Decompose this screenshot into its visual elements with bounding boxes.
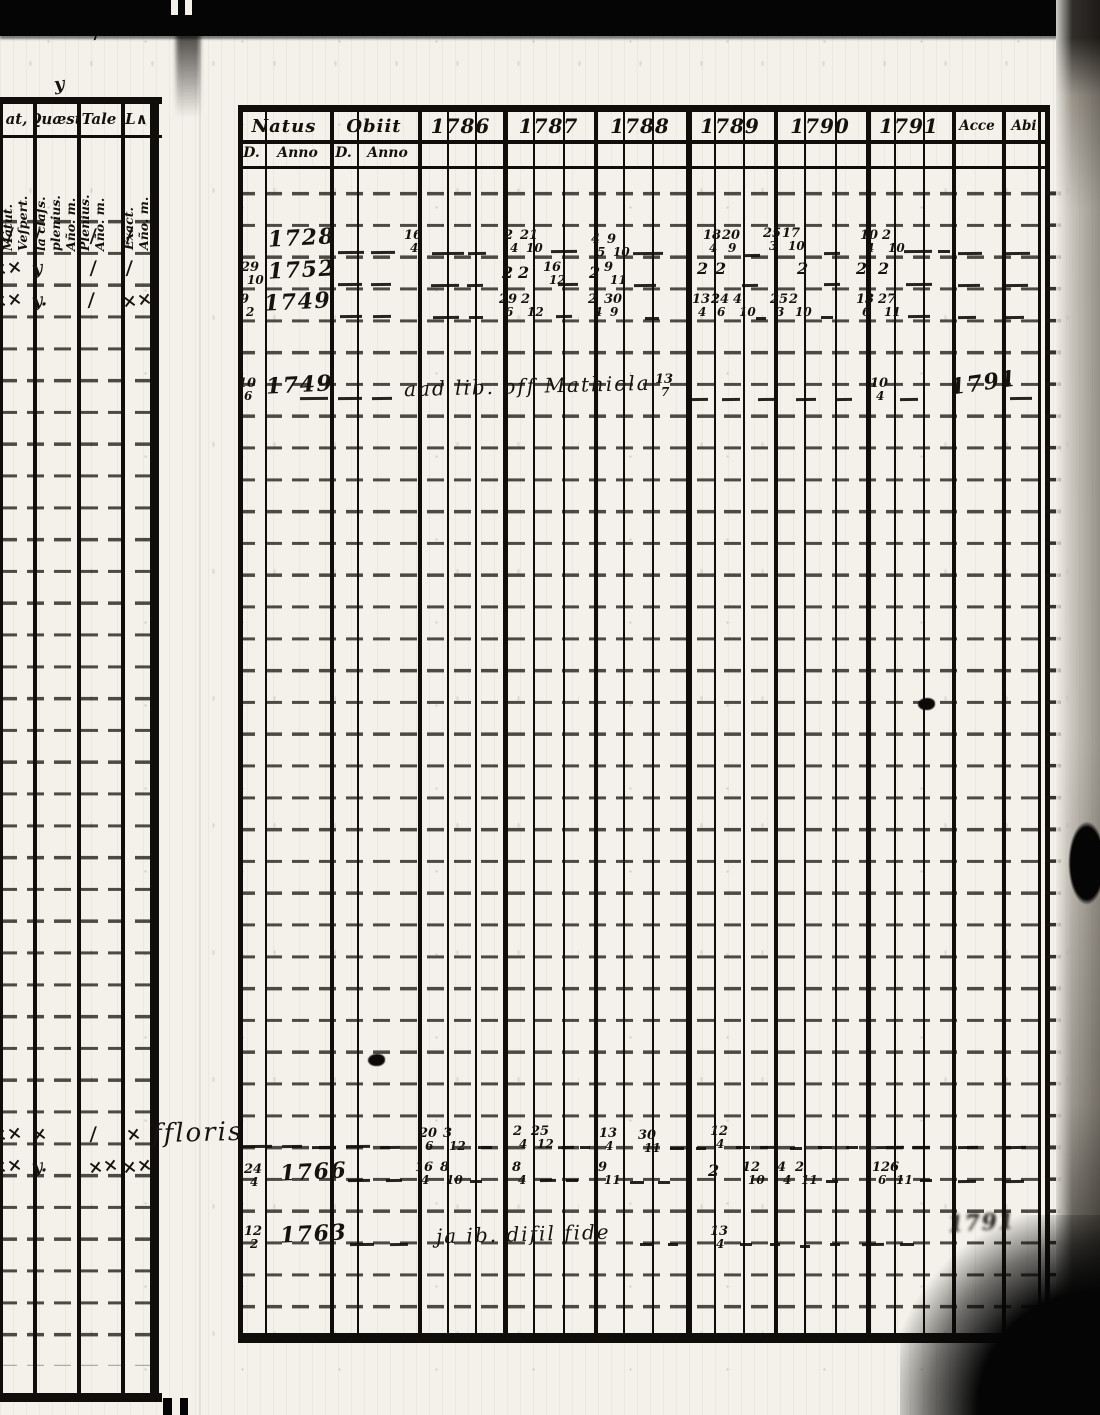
- grid-line: [238, 105, 1050, 112]
- subheader-obiit-anno: Anno: [357, 141, 418, 165]
- grid-line: [952, 105, 956, 1343]
- left-page-table: at, Quæst Tale L∧ Matut. Veſpert. la cla…: [0, 97, 162, 1407]
- header-cell-natus: Natus: [238, 112, 330, 140]
- grid-line: [652, 105, 654, 1343]
- header-cell-acce: Acce: [952, 112, 1002, 140]
- handwritten-entry: ffloris: [152, 1117, 244, 1149]
- grid-line: [0, 135, 162, 138]
- grid-line: [623, 105, 625, 1343]
- grid-line: [503, 105, 508, 1343]
- grid-line: [743, 105, 745, 1343]
- top-band-notch-1: [171, 0, 178, 15]
- grid-line: [357, 105, 359, 1343]
- grid-line: [418, 105, 422, 1343]
- grid-line: [594, 105, 598, 1343]
- subheader-natus-anno: Anno: [265, 141, 330, 165]
- grid-line: [714, 105, 716, 1343]
- scan-bottom-right-shadow: [900, 1215, 1100, 1415]
- left-header-rotated-3: Plenius. Año. m.: [77, 139, 121, 307]
- grid-line: [475, 105, 477, 1343]
- grid-line: [0, 97, 162, 104]
- grid-line: [330, 105, 334, 1343]
- main-row-grid: [238, 169, 1050, 1333]
- grid-line: [238, 166, 1050, 169]
- gutter-shadow-streak: [176, 22, 200, 117]
- grid-line: [1002, 105, 1006, 1343]
- grid-line: [265, 105, 267, 1343]
- grid-line: [686, 105, 692, 1343]
- archival-ledger-scan: { "left_page": { "col_headers": [ {"top"…: [0, 0, 1100, 1415]
- left-header-rotated-1: Matut. Veſpert.: [0, 139, 33, 307]
- scan-right-edge-shadow: [1056, 0, 1100, 1415]
- left-header-cell-1: at,: [0, 105, 33, 133]
- grid-line: [835, 105, 837, 1343]
- bottom-edge-tick-1: [163, 1398, 172, 1415]
- grid-line: [1038, 105, 1041, 1343]
- main-ledger-table: Natus Obiit 1786 1787 1788 1789 1790 179…: [238, 105, 1050, 1345]
- left-page-row-grid: [0, 219, 162, 1393]
- grid-line: [774, 105, 778, 1343]
- grid-line: [804, 105, 806, 1343]
- header-cell-1790: 1790: [774, 112, 866, 140]
- gutter-fold-line: [199, 36, 201, 1415]
- grid-line: [923, 105, 925, 1343]
- header-cell-1791: 1791: [866, 112, 952, 140]
- scan-top-black-band: [0, 0, 1100, 36]
- left-header-rotated-2: la claſs. plenius. Año. m.: [33, 139, 77, 307]
- left-header-cell-3: Tale: [77, 105, 121, 133]
- header-cell-1787: 1787: [503, 112, 594, 140]
- grid-line: [866, 105, 871, 1343]
- header-cell-abi: Abi: [1002, 112, 1046, 140]
- grid-line: [447, 105, 449, 1343]
- top-band-notch-2: [185, 0, 192, 15]
- grid-line: [533, 105, 535, 1343]
- header-cell-1788: 1788: [594, 112, 686, 140]
- bottom-edge-tick-2: [180, 1398, 188, 1415]
- grid-line: [238, 105, 243, 1343]
- header-cell-1789: 1789: [686, 112, 774, 140]
- subheader-natus-d: D.: [238, 141, 265, 165]
- left-header-rotated-4: Exact. Año. m.: [121, 139, 152, 307]
- grid-line: [563, 105, 565, 1343]
- left-header-cell-4: L∧: [121, 105, 152, 133]
- grid-line: [0, 1393, 162, 1402]
- grid-line: [894, 105, 896, 1343]
- subheader-obiit-d: D.: [330, 141, 357, 165]
- left-header-cell-2: Quæst: [33, 105, 77, 133]
- tally-mark: y: [53, 73, 66, 95]
- header-cell-obiit: Obiit: [330, 112, 418, 140]
- header-cell-1786: 1786: [418, 112, 503, 140]
